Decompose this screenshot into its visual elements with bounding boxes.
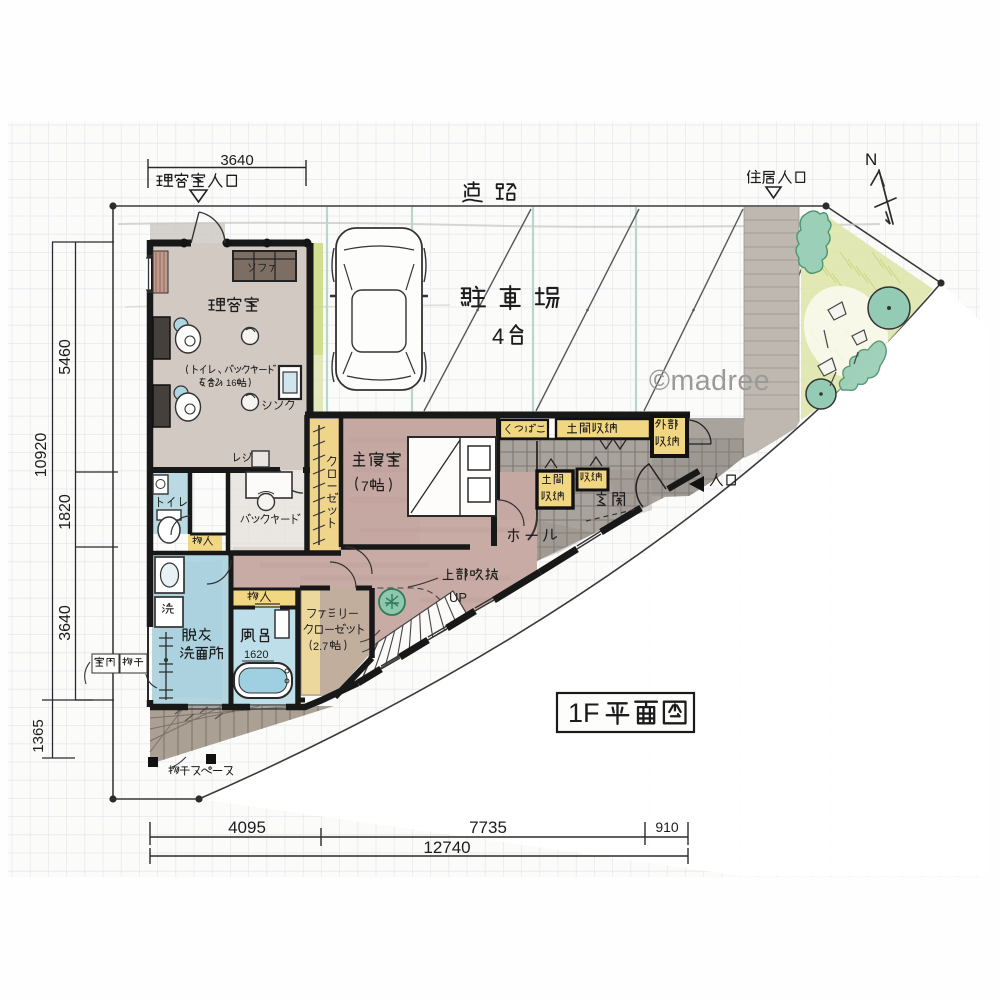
svg-text:1365: 1365	[30, 719, 47, 752]
svg-text:7: 7	[361, 478, 369, 494]
svg-text:4095: 4095	[228, 818, 266, 837]
svg-text:©madree: ©madree	[649, 365, 770, 397]
svg-text:1620: 1620	[244, 649, 268, 661]
svg-text:3640: 3640	[220, 152, 253, 169]
svg-text:10920: 10920	[33, 433, 50, 478]
svg-text:N: N	[865, 150, 877, 169]
svg-text:12740: 12740	[423, 838, 470, 857]
svg-text:2.7: 2.7	[313, 641, 328, 653]
svg-text:UP: UP	[449, 590, 467, 605]
svg-text:16: 16	[226, 378, 237, 389]
svg-text:4: 4	[492, 324, 504, 349]
svg-text:3640: 3640	[57, 605, 74, 641]
svg-text:7735: 7735	[469, 818, 507, 837]
svg-text:5460: 5460	[57, 339, 74, 375]
svg-text:1820: 1820	[57, 494, 74, 530]
svg-text:1F: 1F	[568, 698, 600, 728]
svg-text:910: 910	[655, 819, 679, 835]
